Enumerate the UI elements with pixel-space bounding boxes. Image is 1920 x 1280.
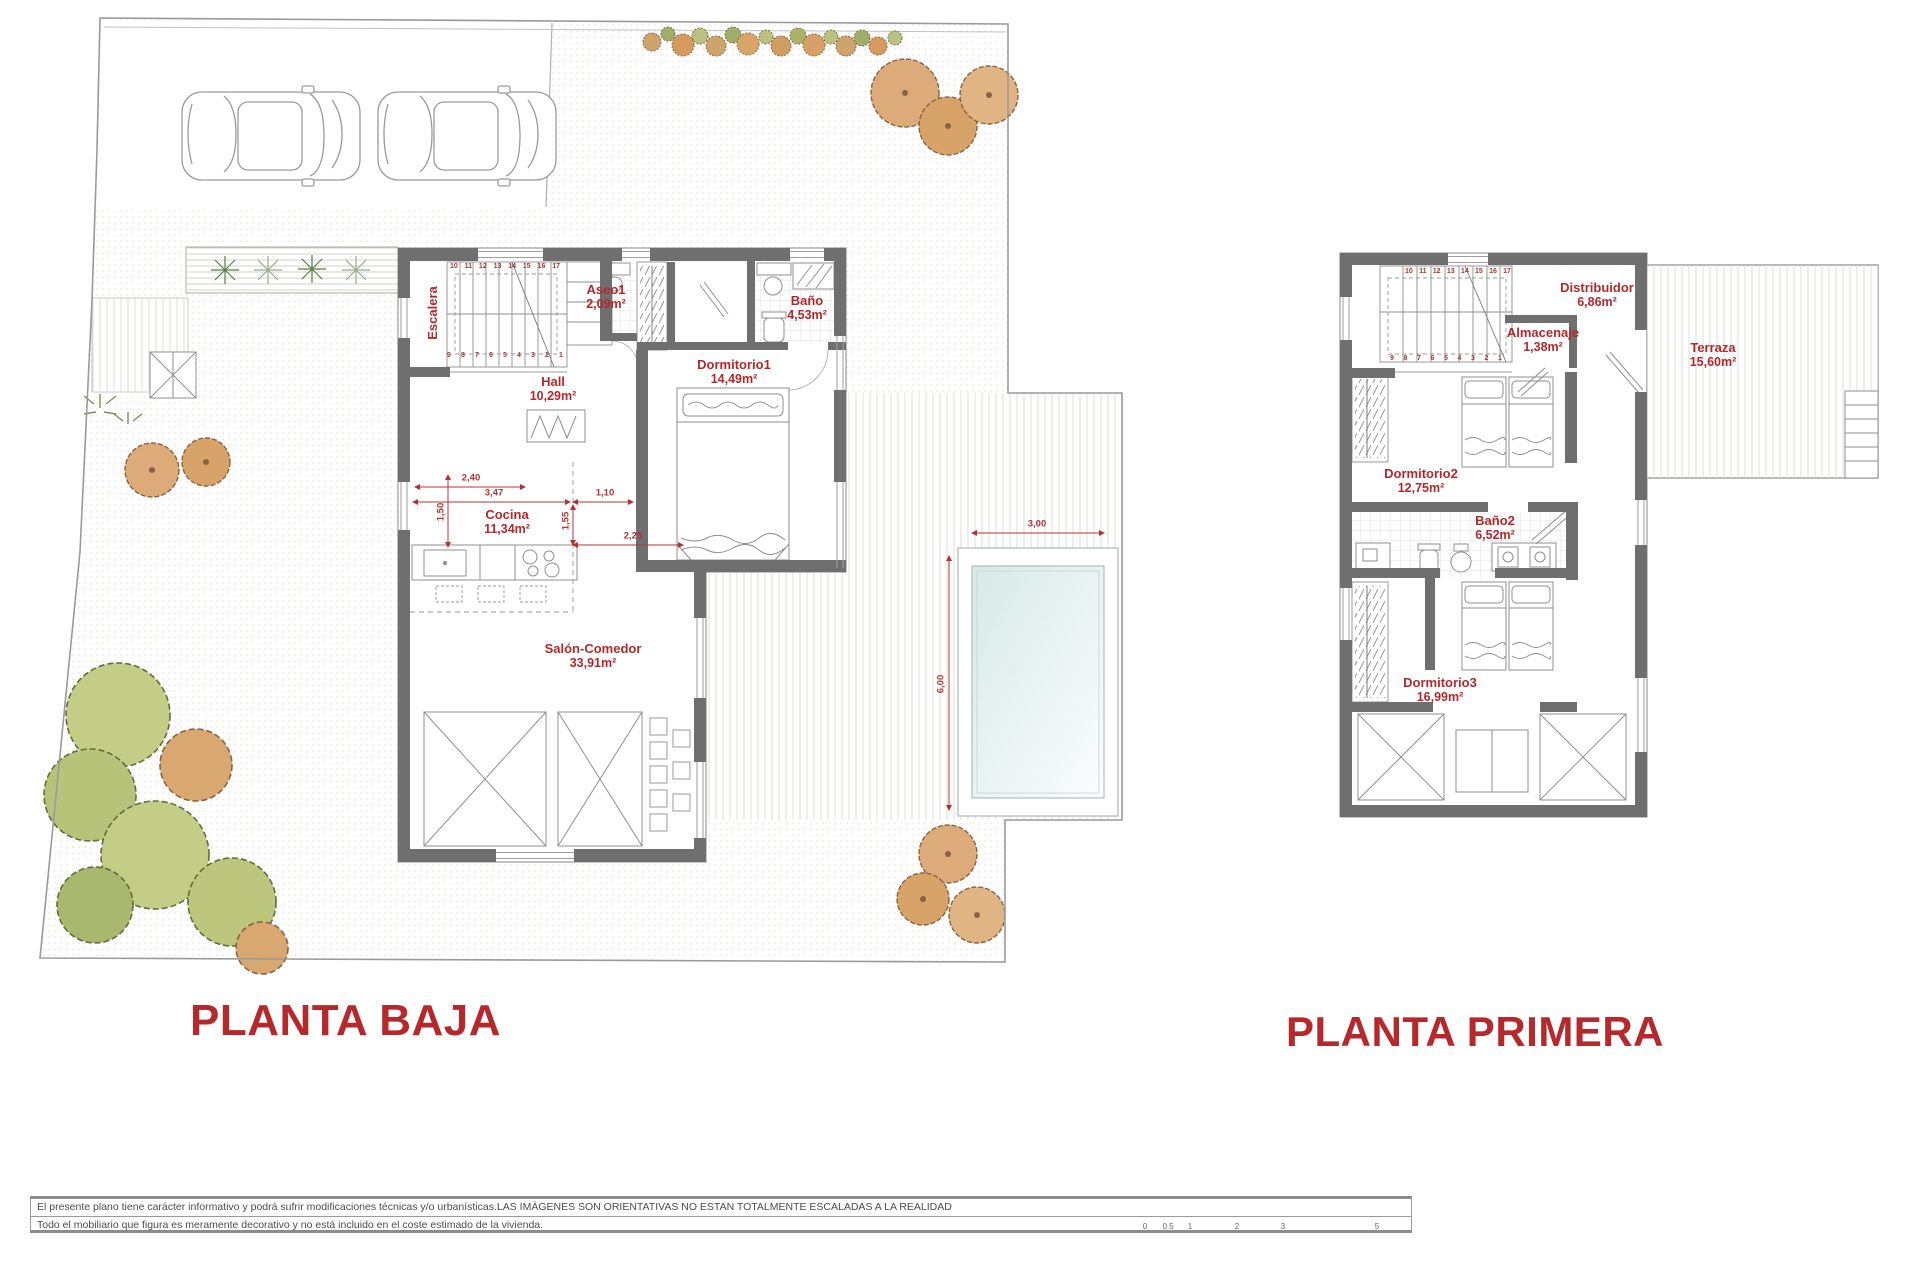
stair-number: 3 xyxy=(531,352,535,359)
scale-label: 5 xyxy=(1375,1222,1379,1231)
scale-label: 1 xyxy=(1188,1222,1192,1231)
stair-numbers-ground-bottom: 987654321 xyxy=(447,352,563,359)
stair-number: 9 xyxy=(447,352,451,359)
scale-label: 3 xyxy=(1281,1222,1285,1231)
dim-label: 1,10 xyxy=(596,488,615,499)
stair-number: 7 xyxy=(475,352,479,359)
room-label-escalera: Escalera xyxy=(426,286,440,340)
scale-label: 2 xyxy=(1235,1222,1239,1231)
stair-number: 4 xyxy=(517,352,521,359)
stair-number: 12 xyxy=(1433,268,1441,275)
first-floor-building xyxy=(1340,253,1878,817)
floor-plan-sheet: PLANTA BAJA PLANTA PRIMERA Escalera Aseo… xyxy=(0,0,1920,1280)
utility-box xyxy=(150,352,196,398)
title-planta-baja: PLANTA BAJA xyxy=(190,996,501,1046)
title-planta-primera: PLANTA PRIMERA xyxy=(1286,1008,1664,1056)
dim-label: 2,25 xyxy=(624,531,643,542)
stair-number: 17 xyxy=(552,263,560,270)
stair-number: 10 xyxy=(450,263,458,270)
swimming-pool xyxy=(949,533,1118,816)
dim-label: 1,50 xyxy=(436,503,447,522)
footer-line-1: El presente plano tiene carácter informa… xyxy=(31,1199,1411,1217)
stair-number: 10 xyxy=(1405,268,1413,275)
room-label-bano2: Baño2 6,52m² xyxy=(1475,514,1515,542)
dim-label-pool-height: 6,00 xyxy=(936,675,947,694)
stair-number: 1 xyxy=(559,352,563,359)
footer-disclaimer: El presente plano tiene carácter informa… xyxy=(30,1196,1412,1233)
dim-label: 1,55 xyxy=(561,512,572,531)
stair-number: 11 xyxy=(1419,268,1426,275)
room-label-dormitorio3: Dormitorio3 16,99m² xyxy=(1403,676,1477,704)
stair-number: 4 xyxy=(1458,355,1462,362)
dim-label: 3,47 xyxy=(485,488,504,499)
stair-number: 13 xyxy=(1447,268,1455,275)
scale-label: 0.5 xyxy=(1162,1222,1173,1231)
stair-number: 8 xyxy=(1404,355,1408,362)
room-label-distribuidor: Distribuidor 6,86m² xyxy=(1560,281,1634,309)
stair-number: 1 xyxy=(1498,355,1502,362)
footer-line-2: Todo el mobiliario que figura es meramen… xyxy=(31,1217,1411,1234)
room-label-terraza: Terraza 15,60m² xyxy=(1690,341,1737,369)
stair-number: 6 xyxy=(489,352,493,359)
stair-number: 9 xyxy=(1390,355,1394,362)
room-label-aseo1: Aseo1 2,09m² xyxy=(586,283,626,311)
stair-number: 2 xyxy=(545,352,549,359)
stair-number: 6 xyxy=(1431,355,1435,362)
stair-numbers-ground-top: 1011121314151617 xyxy=(450,263,560,270)
stair-number: 11 xyxy=(465,263,472,270)
stair-number: 2 xyxy=(1485,355,1489,362)
stair-number: 13 xyxy=(494,263,502,270)
room-label-salon: Salón-Comedor 33,91m² xyxy=(545,642,642,670)
car-icon xyxy=(182,86,360,186)
room-label-almacenaje: Almacenaje 1,38m² xyxy=(1507,326,1579,354)
stair-number: 16 xyxy=(538,263,546,270)
stair-number: 12 xyxy=(479,263,487,270)
stair-number: 16 xyxy=(1489,268,1497,275)
stair-number: 5 xyxy=(503,352,507,359)
plan-drawing xyxy=(0,0,1920,1280)
wardrobe xyxy=(637,262,667,350)
stair-numbers-first-bottom: 987654321 xyxy=(1390,355,1502,362)
dim-label: 2,40 xyxy=(462,473,481,484)
stair-number: 5 xyxy=(1444,355,1448,362)
stair-numbers-first-top: 1011121314151617 xyxy=(1405,268,1511,275)
car-icon xyxy=(378,86,556,186)
room-label-dormitorio1: Dormitorio1 14,49m² xyxy=(697,358,771,386)
stair-number: 8 xyxy=(461,352,465,359)
stair-number: 3 xyxy=(1471,355,1475,362)
stair-number: 15 xyxy=(1475,268,1483,275)
terrace xyxy=(1647,265,1878,478)
room-label-dormitorio2: Dormitorio2 12,75m² xyxy=(1384,467,1458,495)
scale-label: 0 xyxy=(1143,1222,1147,1231)
stair-number: 15 xyxy=(523,263,531,270)
kitchen-counter xyxy=(412,545,577,580)
stair-number: 7 xyxy=(1417,355,1421,362)
stair-number: 14 xyxy=(508,263,516,270)
shoe-cabinet xyxy=(527,410,585,442)
room-label-hall: Hall 10,29m² xyxy=(530,375,577,403)
room-label-cocina: Cocina 11,34m² xyxy=(484,508,530,536)
dim-label-pool-width: 3,00 xyxy=(1028,519,1047,530)
stair-number: 17 xyxy=(1503,268,1511,275)
stair-number: 14 xyxy=(1461,268,1469,275)
room-label-bano: Baño 4,53m² xyxy=(787,294,827,322)
double-bed xyxy=(677,388,789,560)
